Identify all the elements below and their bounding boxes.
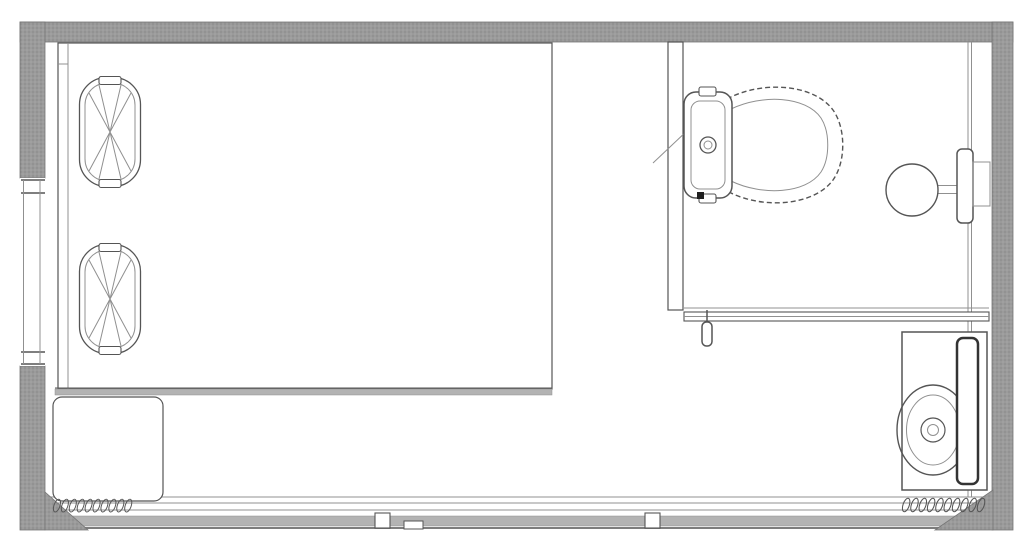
pillow-top [80,77,141,188]
wall-left-upper [20,22,45,178]
wall-left-lower [20,366,45,530]
floor-plan [0,0,1024,545]
nightstand [53,397,163,501]
pillow-bottom [80,244,141,355]
door-pull-handle [702,322,712,346]
wall-right [992,22,1013,530]
basin-wall-panel [957,149,973,223]
sliding-door-handle [375,513,390,528]
basin-bowl [886,164,938,216]
toilet-mark [697,192,704,199]
washing-machine [897,332,987,490]
washer-door-panel [957,338,978,484]
sliding-door-handle [645,513,660,528]
window [20,178,45,366]
sliding-door-tab [404,521,423,529]
flush-button [700,137,716,153]
mattress-edge [55,389,552,395]
wall-top [20,22,1013,42]
floor-plan-canvas [0,0,1024,545]
